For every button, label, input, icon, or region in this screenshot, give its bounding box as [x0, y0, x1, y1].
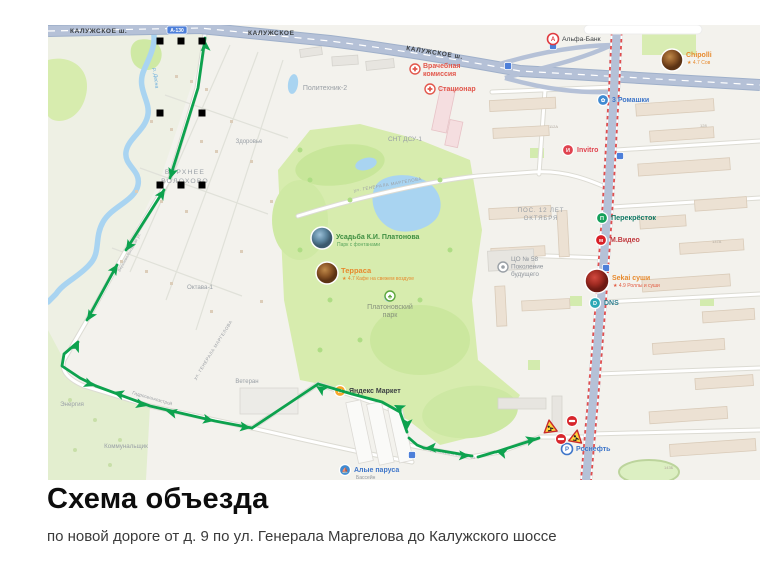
- poi-perekrestok[interactable]: ППерекрёсток: [597, 213, 657, 224]
- transit-badge: [409, 452, 416, 459]
- selection-handle[interactable]: [157, 38, 164, 45]
- selection-handle[interactable]: [178, 182, 185, 189]
- svg-text:⛵: ⛵: [342, 467, 349, 474]
- photo-poi-icon[interactable]: [316, 262, 338, 284]
- poi-label: Перекрёсток: [611, 213, 656, 222]
- poi-rosneft[interactable]: РРоснефть: [562, 444, 612, 455]
- poi-sublabel: Парк с фонтанами: [337, 242, 380, 248]
- photo-poi-icon[interactable]: [585, 269, 609, 293]
- poi-label: Усадьба К.И. Платонова: [336, 233, 420, 241]
- route-number-text: А-130: [170, 28, 184, 34]
- house-number: 137А: [712, 239, 722, 244]
- house-number: 112А: [549, 124, 558, 129]
- poi-label: 3 Ромашки: [612, 97, 649, 104]
- road-label: КАЛУЖСКОЕ ш.: [70, 28, 127, 35]
- poi-label: будущего: [511, 270, 539, 278]
- transit-badge: [505, 63, 512, 70]
- poi-tri-romashki[interactable]: ✿3 Ромашки: [598, 95, 650, 106]
- poi-label: Chipolli: [686, 52, 712, 59]
- svg-text:D: D: [593, 301, 597, 307]
- area-label: Октава-1: [187, 284, 214, 291]
- poi-label: Алые паруса: [354, 467, 399, 474]
- no-entry-sign: [556, 434, 567, 445]
- poi-label: Врачебная: [423, 62, 460, 70]
- poi-label: Invitro: [577, 147, 598, 154]
- area-label: Политехник-2: [303, 85, 347, 92]
- svg-text:А: А: [551, 37, 556, 43]
- poi-stacionar[interactable]: Стационар: [425, 84, 476, 94]
- selection-handle[interactable]: [157, 110, 164, 117]
- area-label: ПОС. 12 ЛЕТ: [518, 207, 565, 214]
- svg-text:И: И: [566, 148, 570, 154]
- selection-handle[interactable]: [199, 182, 206, 189]
- poi-mvideo[interactable]: мМ.Видео: [596, 235, 640, 246]
- poi-label: ЦО № 58: [511, 256, 539, 263]
- detour-map[interactable]: А-130 КАЛУЖСКОЕ ш.КАЛУЖСКОЕКАЛУЖСКОЕ ш.у…: [48, 25, 760, 480]
- svg-text:Р: Р: [565, 447, 569, 453]
- transit-badge: [617, 153, 624, 160]
- house-number: 143Б: [664, 465, 674, 470]
- poi-sublabel: ★ 4.7 Сов: [687, 60, 711, 66]
- poi-invitro[interactable]: ИInvitro: [563, 145, 599, 156]
- svg-text:м: м: [599, 238, 603, 244]
- poi-label: Терраса: [341, 266, 372, 275]
- area-label: Коммунальщик: [104, 443, 148, 450]
- no-entry-sign: [567, 416, 578, 427]
- svg-text:П: П: [600, 216, 604, 222]
- selection-handle[interactable]: [199, 110, 206, 117]
- poi-label: комиссия: [423, 71, 456, 78]
- area-label: ОКТЯБРЯ: [524, 215, 559, 222]
- poi-alfa-bank[interactable]: ААльфа-Банк: [548, 34, 601, 45]
- page-subtitle: по новой дороге от д. 9 по ул. Генерала …: [47, 528, 557, 545]
- poi-label: Стационар: [438, 86, 476, 93]
- area-label: Энергия: [60, 401, 84, 408]
- photo-poi-icon[interactable]: [661, 49, 683, 71]
- poi-label: Sekai суши: [612, 275, 650, 282]
- svg-text:✿: ✿: [601, 97, 606, 104]
- poi-sublabel: ★ 4.7 Кафе на свежем воздухе: [342, 276, 414, 282]
- page-title: Схема объезда: [47, 483, 268, 516]
- road-label: КАЛУЖСКОЕ: [248, 30, 295, 37]
- poi-label: парк: [383, 312, 399, 319]
- area-label: Ветеран: [235, 379, 258, 385]
- selection-handle[interactable]: [157, 182, 164, 189]
- photo-poi-icon[interactable]: [311, 227, 333, 249]
- poi-label: Поколение: [511, 264, 544, 271]
- house-number: 128: [700, 123, 707, 128]
- poi-label: Альфа-Банк: [562, 36, 601, 43]
- poi-sublabel: Бассейн: [356, 474, 376, 480]
- area-label: Здоровье: [236, 139, 263, 145]
- svg-text:♣: ♣: [388, 293, 393, 300]
- map-control-pill: [584, 25, 702, 34]
- poi-label: Роснефть: [576, 446, 611, 453]
- poi-sublabel: ★ 4.9 Роллы и суши: [613, 283, 660, 289]
- poi-label: Платоновский: [367, 303, 413, 311]
- selection-handle[interactable]: [199, 38, 206, 45]
- selection-handle[interactable]: [178, 38, 185, 45]
- poi-label: DNS: [604, 300, 619, 307]
- poi-dns[interactable]: DDNS: [590, 298, 620, 309]
- poi-label: М.Видео: [610, 237, 640, 244]
- area-label: СНТ ДСУ-1: [388, 136, 422, 143]
